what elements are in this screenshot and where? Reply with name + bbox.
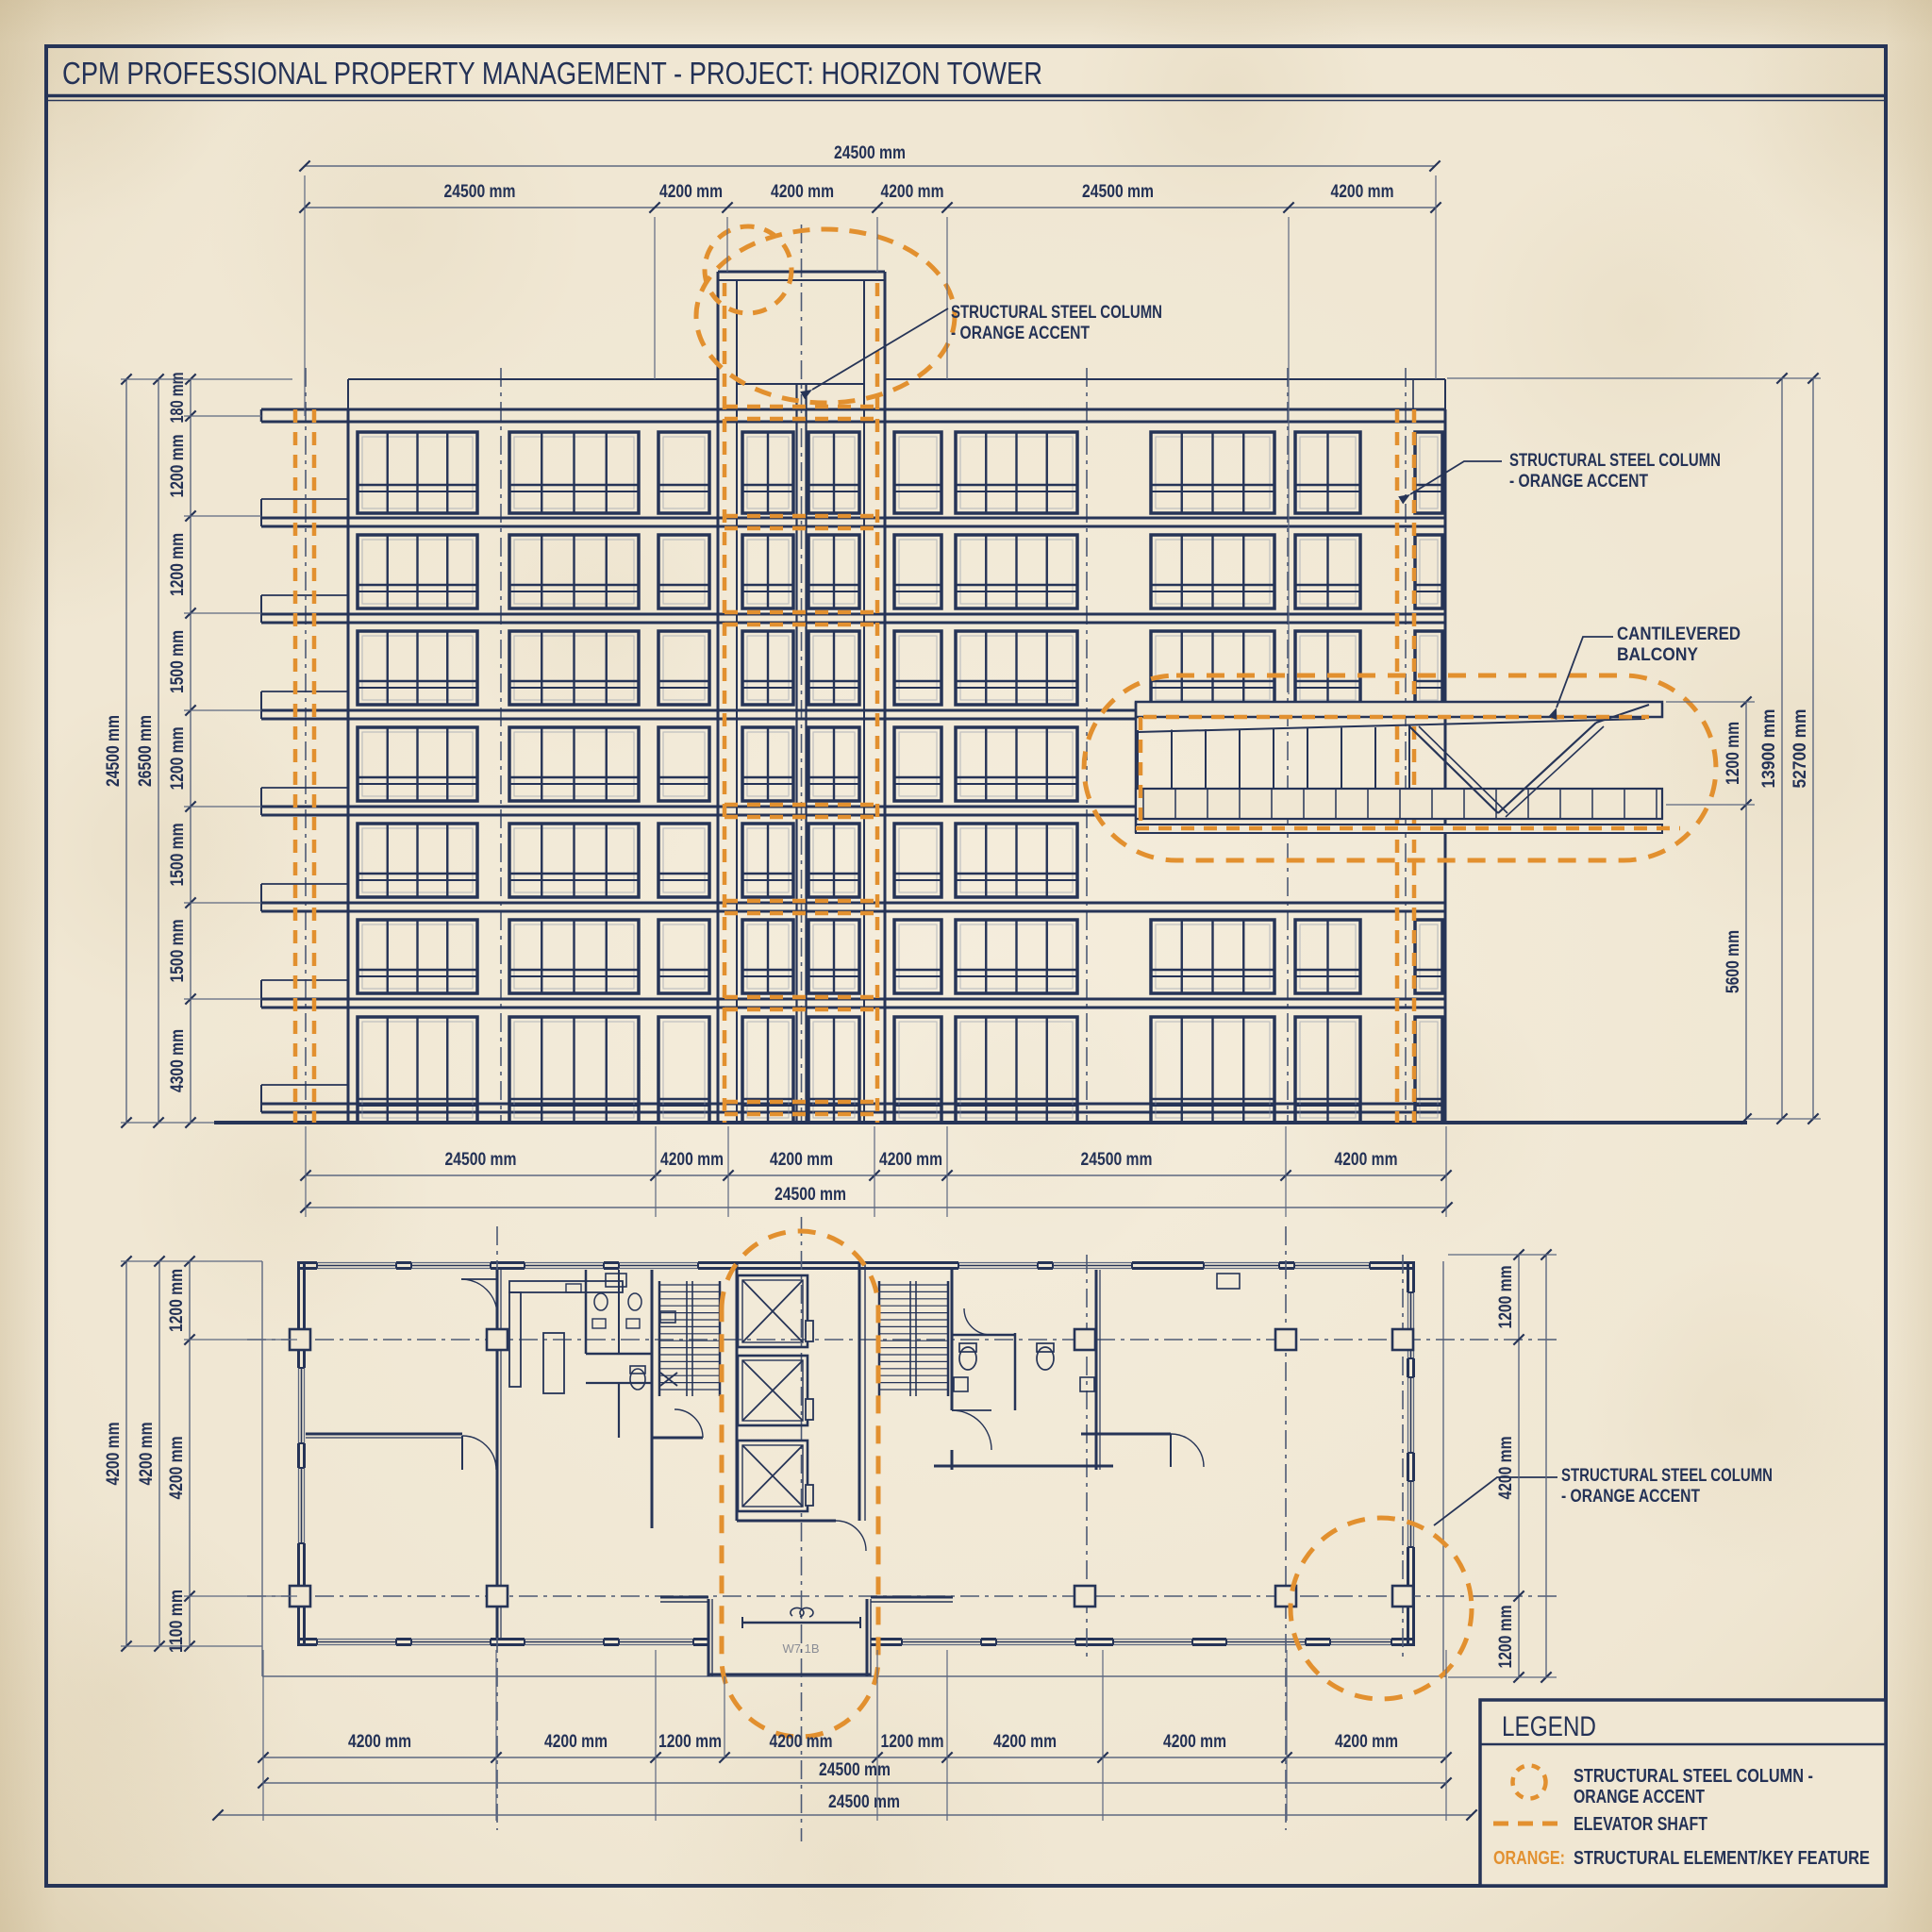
svg-text:4200 mm: 4200 mm xyxy=(1335,1732,1398,1752)
svg-text:STRUCTURAL ELEMENT/KEY FEATURE: STRUCTURAL ELEMENT/KEY FEATURE xyxy=(1574,1848,1870,1869)
svg-text:1500 mm: 1500 mm xyxy=(168,920,188,983)
svg-text:24500 mm: 24500 mm xyxy=(1081,1150,1153,1170)
svg-text:- ORANGE ACCENT: - ORANGE ACCENT xyxy=(1509,472,1648,491)
svg-text:52700 mm: 52700 mm xyxy=(1790,709,1810,789)
svg-text:W7 1B: W7 1B xyxy=(782,1641,819,1656)
svg-text:1200 mm: 1200 mm xyxy=(1724,722,1743,785)
svg-text:4200 mm: 4200 mm xyxy=(1496,1437,1516,1500)
svg-text:1200 mm: 1200 mm xyxy=(1496,1266,1516,1329)
svg-text:1200 mm: 1200 mm xyxy=(168,727,188,791)
svg-text:4200 mm: 4200 mm xyxy=(167,1437,187,1500)
svg-text:4200 mm: 4200 mm xyxy=(659,182,723,202)
svg-text:13900 mm: 13900 mm xyxy=(1759,709,1779,789)
svg-text:1200 mm: 1200 mm xyxy=(881,1732,944,1752)
svg-text:STRUCTURAL STEEL COLUMN -: STRUCTURAL STEEL COLUMN - xyxy=(1574,1766,1813,1787)
svg-text:STRUCTURAL STEEL COLUMN: STRUCTURAL STEEL COLUMN xyxy=(951,303,1162,323)
svg-text:4200 mm: 4200 mm xyxy=(1331,182,1394,202)
svg-text:STRUCTURAL STEEL COLUMN: STRUCTURAL STEEL COLUMN xyxy=(1561,1466,1773,1486)
svg-text:ORANGE ACCENT: ORANGE ACCENT xyxy=(1574,1787,1705,1807)
svg-text:4200 mm: 4200 mm xyxy=(879,1150,942,1170)
svg-text:24500 mm: 24500 mm xyxy=(1082,182,1154,202)
svg-text:4200 mm: 4200 mm xyxy=(104,1423,124,1486)
svg-text:1200 mm: 1200 mm xyxy=(658,1732,722,1752)
svg-text:24500 mm: 24500 mm xyxy=(834,143,906,163)
svg-text:LEGEND: LEGEND xyxy=(1502,1711,1596,1742)
svg-text:24500 mm: 24500 mm xyxy=(774,1185,846,1205)
svg-text:- ORANGE ACCENT: - ORANGE ACCENT xyxy=(1561,1487,1700,1507)
svg-text:1200 mm: 1200 mm xyxy=(167,1269,187,1332)
svg-text:4300 mm: 4300 mm xyxy=(168,1029,188,1092)
svg-text:CPM PROFESSIONAL PROPERTY MANA: CPM PROFESSIONAL PROPERTY MANAGEMENT - P… xyxy=(62,57,1042,92)
svg-text:4200 mm: 4200 mm xyxy=(770,1150,833,1170)
svg-text:4200 mm: 4200 mm xyxy=(137,1423,157,1486)
svg-text:24500 mm: 24500 mm xyxy=(104,715,124,787)
svg-text:1100 mm: 1100 mm xyxy=(167,1590,187,1653)
svg-text:1200 mm: 1200 mm xyxy=(168,533,188,596)
svg-text:26500 mm: 26500 mm xyxy=(136,715,156,787)
svg-text:ELEVATOR SHAFT: ELEVATOR SHAFT xyxy=(1574,1814,1707,1835)
svg-text:4200 mm: 4200 mm xyxy=(770,1732,833,1752)
svg-text:4200 mm: 4200 mm xyxy=(993,1732,1057,1752)
svg-text:BALCONY: BALCONY xyxy=(1617,645,1698,665)
svg-text:1500 mm: 1500 mm xyxy=(168,630,188,693)
svg-text:24500 mm: 24500 mm xyxy=(828,1792,900,1812)
svg-text:4200 mm: 4200 mm xyxy=(771,182,834,202)
svg-text:4200 mm: 4200 mm xyxy=(881,182,944,202)
svg-text:5600 mm: 5600 mm xyxy=(1724,930,1743,993)
svg-text:1200 mm: 1200 mm xyxy=(1496,1606,1516,1669)
svg-text:24500 mm: 24500 mm xyxy=(819,1760,891,1780)
svg-text:ORANGE:: ORANGE: xyxy=(1493,1848,1565,1869)
svg-text:4200 mm: 4200 mm xyxy=(348,1732,411,1752)
svg-text:4200 mm: 4200 mm xyxy=(660,1150,724,1170)
svg-text:CANTILEVERED: CANTILEVERED xyxy=(1617,625,1740,644)
svg-text:1200 mm: 1200 mm xyxy=(168,435,188,498)
svg-text:24500 mm: 24500 mm xyxy=(445,1150,517,1170)
svg-text:4200 mm: 4200 mm xyxy=(544,1732,608,1752)
svg-text:- ORANGE ACCENT: - ORANGE ACCENT xyxy=(951,324,1090,343)
svg-text:24500 mm: 24500 mm xyxy=(444,182,516,202)
svg-text:4200 mm: 4200 mm xyxy=(1163,1732,1226,1752)
svg-text:1500 mm: 1500 mm xyxy=(168,824,188,887)
svg-text:4200 mm: 4200 mm xyxy=(1335,1150,1398,1170)
svg-text:STRUCTURAL STEEL COLUMN: STRUCTURAL STEEL COLUMN xyxy=(1509,451,1721,471)
